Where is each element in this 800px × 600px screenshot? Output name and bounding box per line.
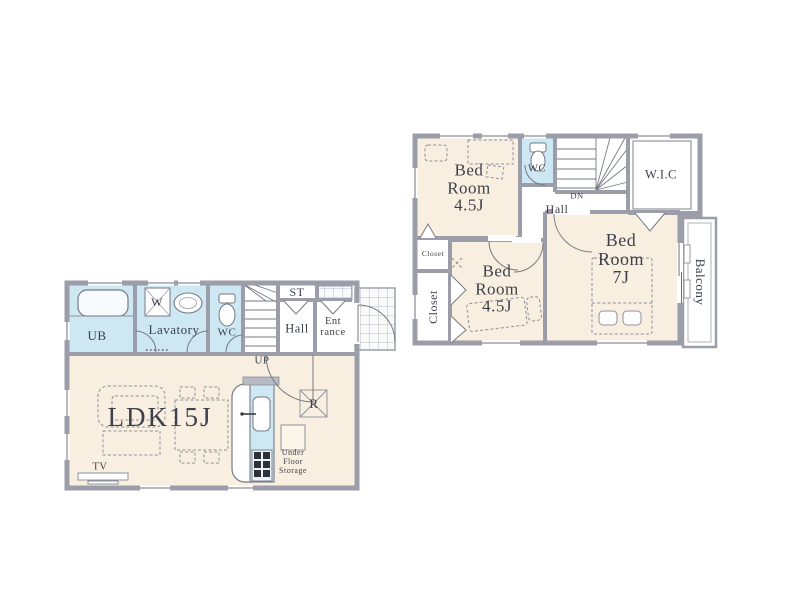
pillow-c1 — [599, 311, 617, 325]
floor1-plan — [65, 281, 396, 491]
bathtub — [78, 290, 128, 316]
floorplan-canvas: UB W Lavatory WC ST Hall Ent rance UP LD… — [0, 0, 800, 600]
balcony-structure — [683, 218, 716, 347]
bedroom-b-door-gap — [512, 237, 541, 243]
wic-inner — [633, 141, 691, 209]
bedroom-c-door-gap — [553, 209, 590, 215]
stove — [252, 450, 272, 481]
floorplan-drawing — [0, 0, 800, 600]
pillow-c2 — [623, 311, 641, 325]
under-floor-storage-hatch — [281, 425, 305, 450]
washing-machine — [145, 288, 170, 316]
balcony-sliding-door — [677, 243, 683, 303]
floor2-plan — [413, 134, 717, 348]
toilet — [219, 294, 235, 326]
toilet-2f — [530, 143, 546, 171]
bedroom-a-door-gap — [488, 235, 516, 241]
lavatory-sink — [174, 293, 202, 313]
front-door-gap — [354, 303, 360, 344]
